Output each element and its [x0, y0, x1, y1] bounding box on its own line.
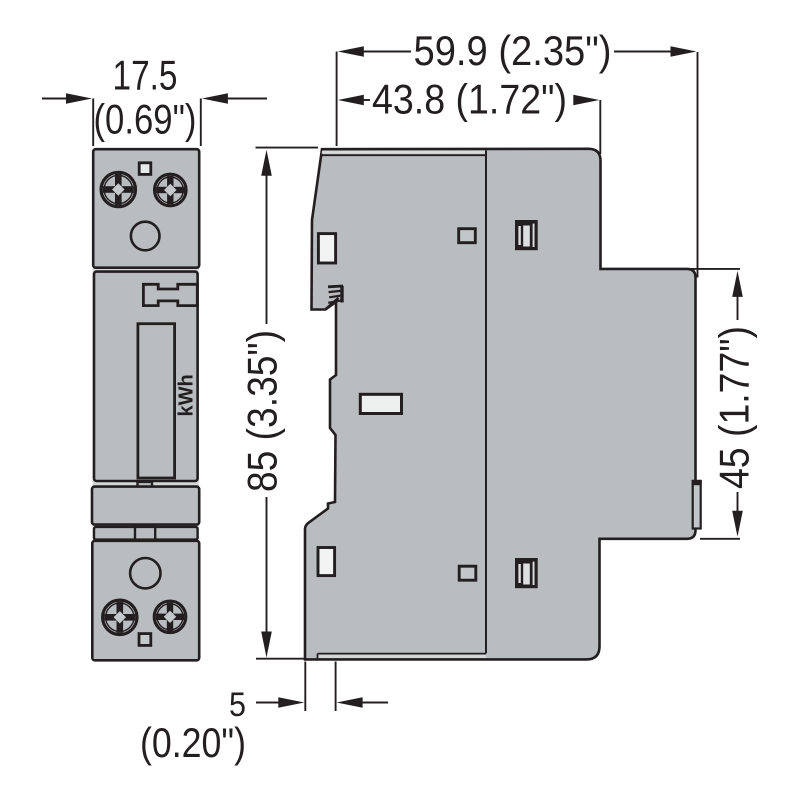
svg-text:kWh: kWh	[176, 374, 198, 416]
svg-text:59.9 (2.35"): 59.9 (2.35")	[414, 27, 612, 74]
svg-text:17.5: 17.5	[113, 52, 178, 99]
svg-text:(0.20"): (0.20")	[140, 719, 246, 766]
svg-text:85 (3.35"): 85 (3.35")	[239, 330, 286, 492]
svg-text:(0.69"): (0.69")	[94, 96, 197, 143]
svg-text:45 (1.77"): 45 (1.77")	[711, 326, 758, 489]
svg-text:43.8 (1.72"): 43.8 (1.72")	[372, 76, 567, 123]
